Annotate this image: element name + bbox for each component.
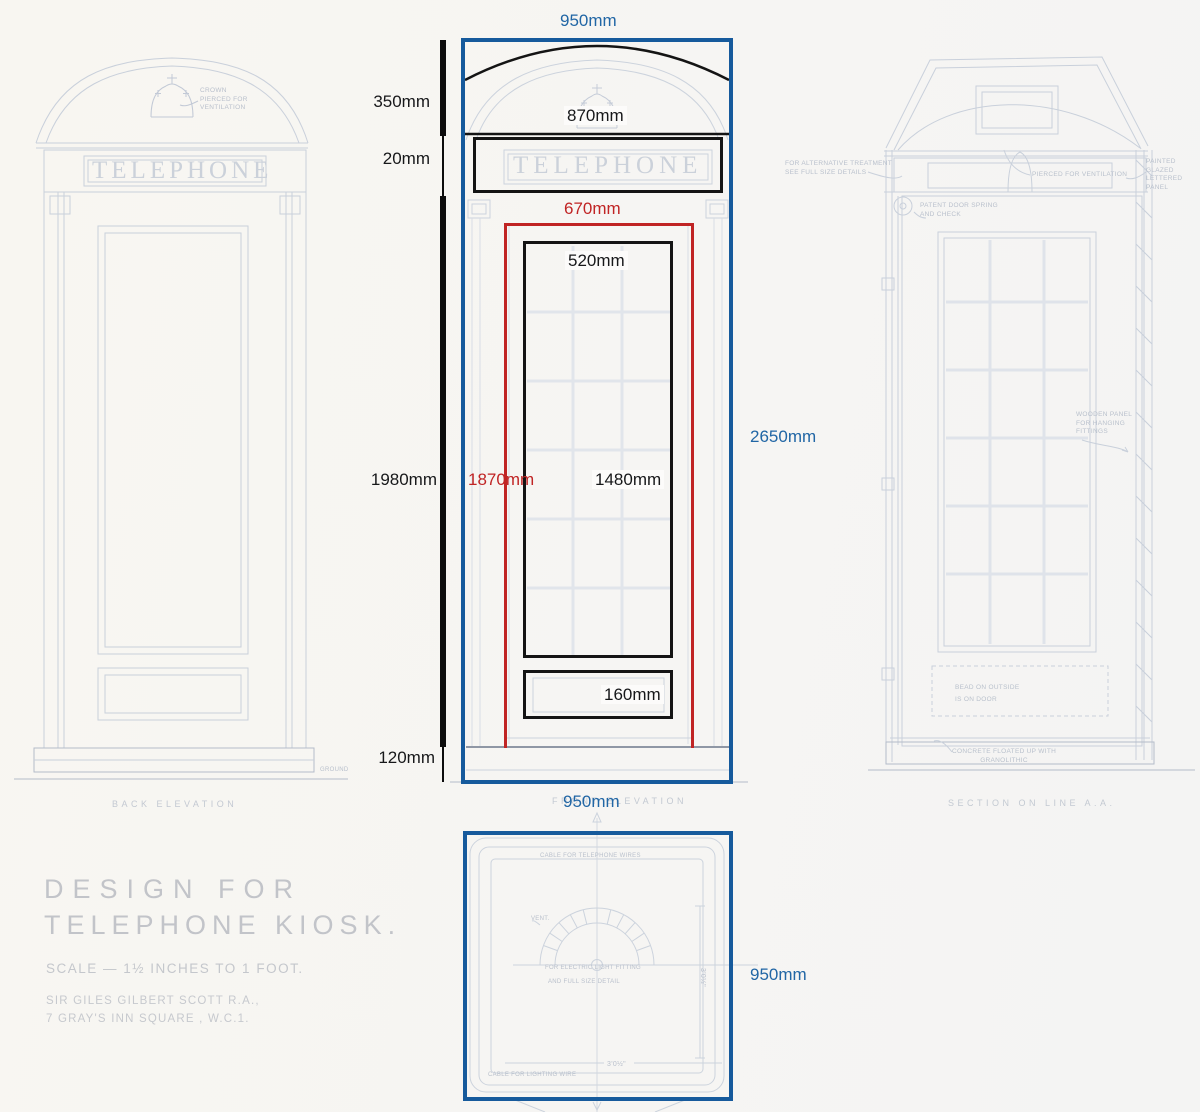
dim-bar-plinth [442,747,444,782]
scale-note: SCALE — 1½ INCHES TO 1 FOOT. [46,961,304,976]
dim-bar-roof [440,40,446,136]
dim-signband-height: 20mm [352,149,430,168]
glazed-panel-note: PAINTED GLAZED LETTERED PANEL [1146,158,1200,192]
telephone-sign-outline-box [473,137,723,193]
dim-bar-body [440,196,446,747]
alt-treatment-note: FOR ALTERNATIVE TREATMENT SEE FULL SIZE … [785,160,892,177]
architect-address: 7 GRAY'S INN SQUARE , W.C.1. [46,1013,250,1025]
dim-body-height: 1980mm [350,470,437,489]
crown-note: CROWN PIERCED FOR VENTILATION [200,87,248,113]
title-line-1: DESIGN FOR [44,874,302,905]
dim-plan-depth: 950mm [750,965,807,984]
dim-roof-height: 350mm [352,92,430,111]
dim-door-height: 1870mm [468,470,534,489]
door-spring-note: PATENT DOOR SPRING AND CHECK [920,202,998,219]
dim-bottom-width: 950mm [563,792,620,811]
blueprint-canvas: TELEPHONE TELEPHONE CROWN PIERCED FOR VE… [0,0,1200,1112]
concrete-note: CONCRETE FLOATED UP WITH GRANOLITHIC [952,748,1056,765]
plan-outline-box [463,831,733,1101]
bead-note: BEAD ON OUTSIDE IS ON DOOR [955,682,1019,706]
dim-doorframe-width: 670mm [564,199,621,218]
dim-plinth-height: 120mm [352,748,435,767]
title-line-2: TELEPHONE KIOSK. [44,910,401,941]
dim-bar-signband [442,136,444,196]
dim-dome-width: 870mm [564,106,627,125]
dim-overall-height: 2650mm [750,427,816,446]
section-label: SECTION ON LINE A.A. [948,798,1116,808]
wooden-panel-note: WOODEN PANEL FOR HANGING FITTINGS [1076,411,1132,437]
architect-name: SIR GILES GILBERT SCOTT R.A., [46,995,260,1007]
dim-kickpanel-height: 160mm [601,685,664,704]
dim-top-width: 950mm [560,11,617,30]
telephone-sign-back: TELEPHONE [92,157,272,185]
dim-glazing-width: 520mm [565,251,628,270]
glazing-outline-box [523,241,673,658]
dim-glazing-height: 1480mm [592,470,664,489]
back-elevation-label: BACK ELEVATION [112,799,237,809]
ground-label: GROUND [320,766,348,775]
pierced-vent-note: PIERCED FOR VENTILATION [1032,171,1127,180]
